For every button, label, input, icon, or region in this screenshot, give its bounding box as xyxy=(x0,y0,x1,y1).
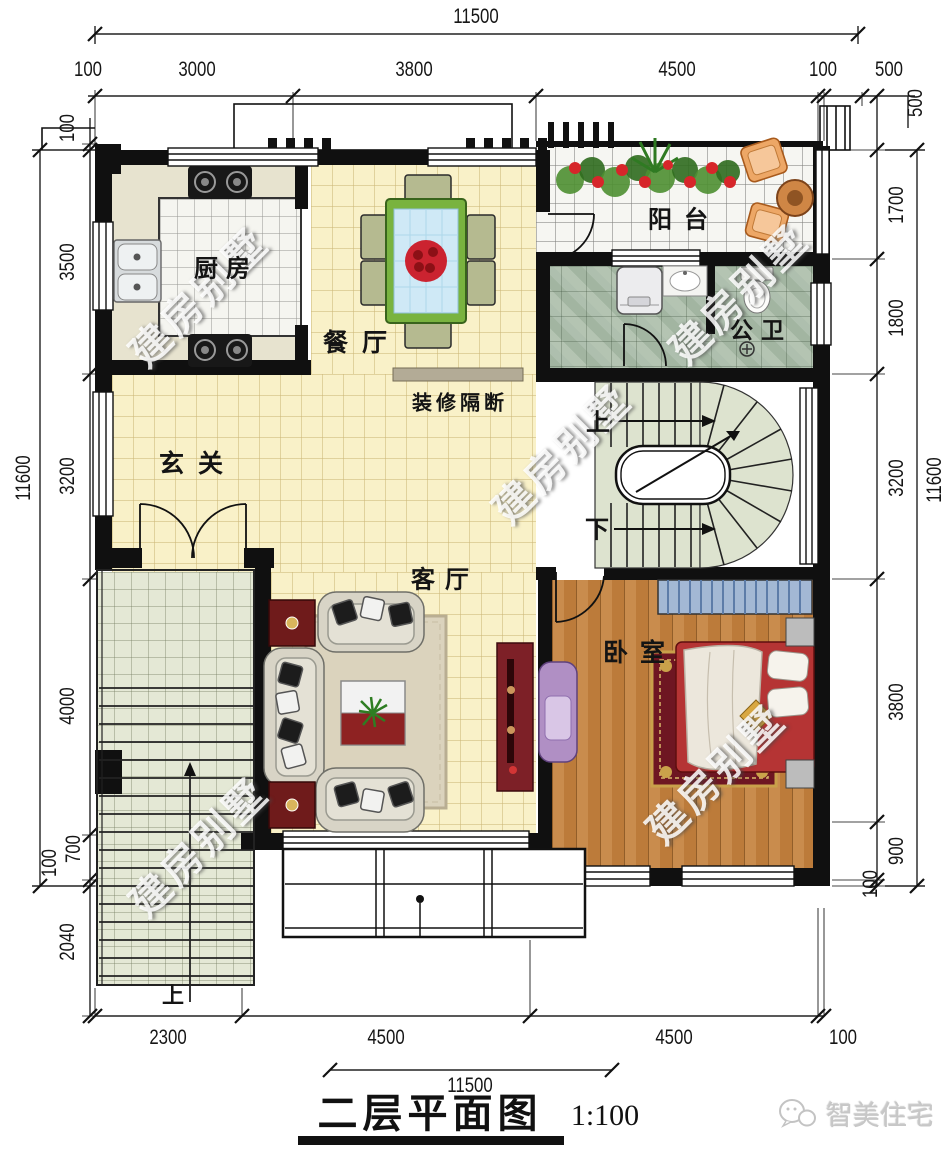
chat-bubbles-icon xyxy=(778,1097,818,1131)
scale-label: 1:100 xyxy=(571,1099,639,1133)
page-title: 二层平面图 xyxy=(318,1081,543,1139)
title-underline xyxy=(298,1136,564,1145)
brand-name: 智美住宅 xyxy=(826,1094,934,1133)
footer-layer: 二层平面图 1:100 智美住宅 xyxy=(0,0,950,1154)
brand-logo: 智美住宅 xyxy=(778,1094,934,1133)
floor-plan: 建房别墅 建房别墅 建房别墅 建房别墅 建房别墅 11500 100 3000 … xyxy=(0,0,950,1154)
